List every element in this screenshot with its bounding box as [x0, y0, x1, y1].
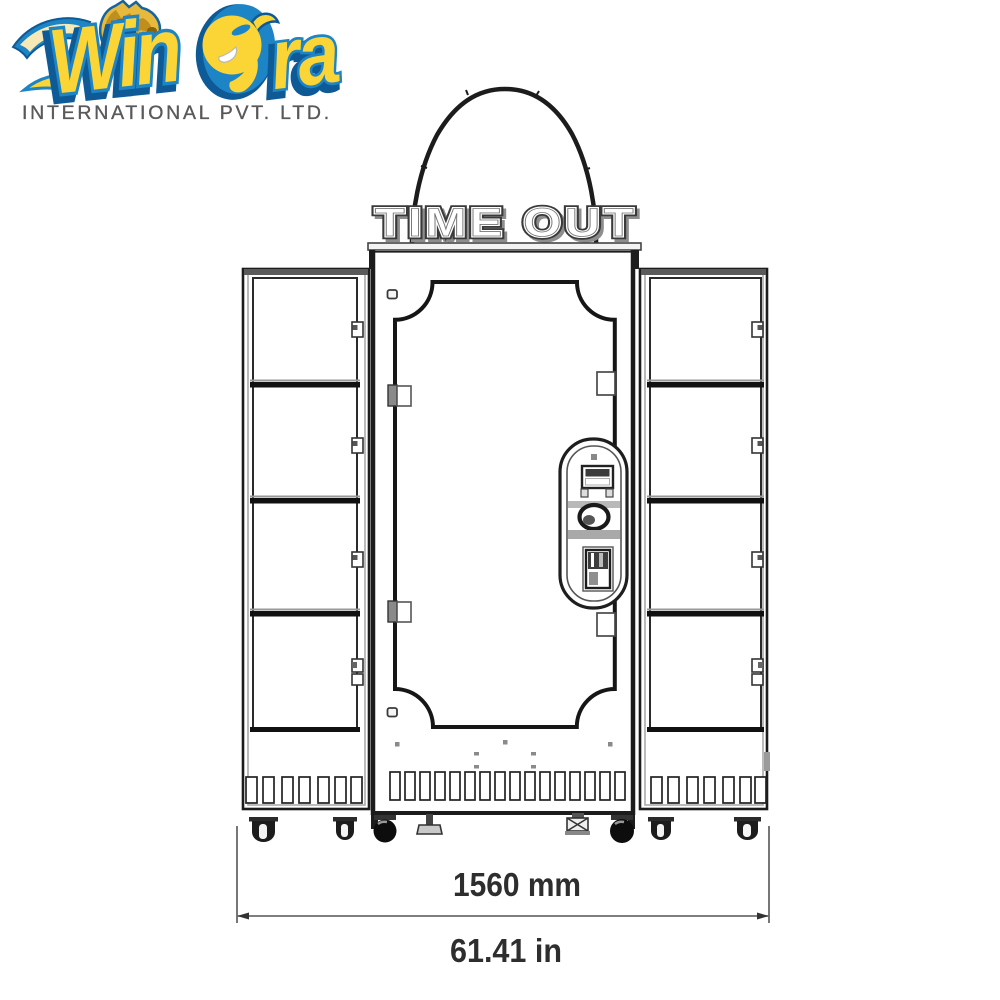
- svg-text:Win: Win: [44, 0, 184, 114]
- svg-text:ra: ra: [265, 5, 343, 108]
- svg-text:61.41 in: 61.41 in: [450, 932, 562, 969]
- svg-text:1560 mm: 1560 mm: [453, 866, 581, 903]
- svg-text:INTERNATIONAL PVT. LTD.: INTERNATIONAL PVT. LTD.: [22, 102, 332, 124]
- svg-text:TIME OUT: TIME OUT: [375, 201, 637, 245]
